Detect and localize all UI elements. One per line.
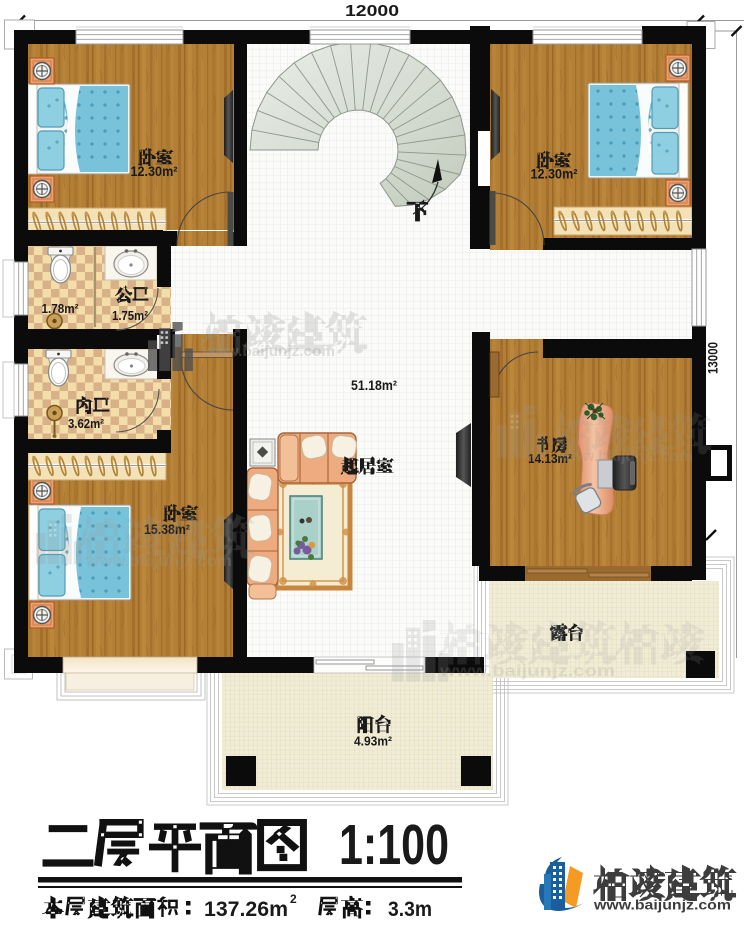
svg-text:3.3m: 3.3m — [388, 898, 432, 921]
svg-text:51.18m²: 51.18m² — [351, 378, 397, 393]
svg-text:12000: 12000 — [345, 3, 399, 20]
svg-text:www.baijunjz.com: www.baijunjz.com — [85, 553, 232, 570]
svg-text:137.26m: 137.26m — [204, 898, 288, 921]
svg-text:3.62m²: 3.62m² — [68, 417, 104, 431]
svg-text:1.78m²: 1.78m² — [42, 302, 79, 316]
svg-text:4.93m²: 4.93m² — [354, 734, 393, 749]
svg-text:www.baijunjz.com: www.baijunjz.com — [439, 663, 615, 680]
svg-text:www.baijunjz.com: www.baijunjz.com — [202, 343, 335, 360]
svg-text:www.baijunjz.com: www.baijunjz.com — [557, 448, 693, 465]
svg-text:12.30m²: 12.30m² — [531, 167, 578, 182]
svg-text:12.30m²: 12.30m² — [131, 164, 178, 179]
svg-text:1:100: 1:100 — [339, 813, 449, 877]
svg-text:13000: 13000 — [705, 342, 721, 374]
svg-text:www.baijunjz.com: www.baijunjz.com — [593, 898, 731, 913]
svg-text:2: 2 — [290, 892, 297, 906]
svg-text:1.75m²: 1.75m² — [112, 309, 148, 323]
